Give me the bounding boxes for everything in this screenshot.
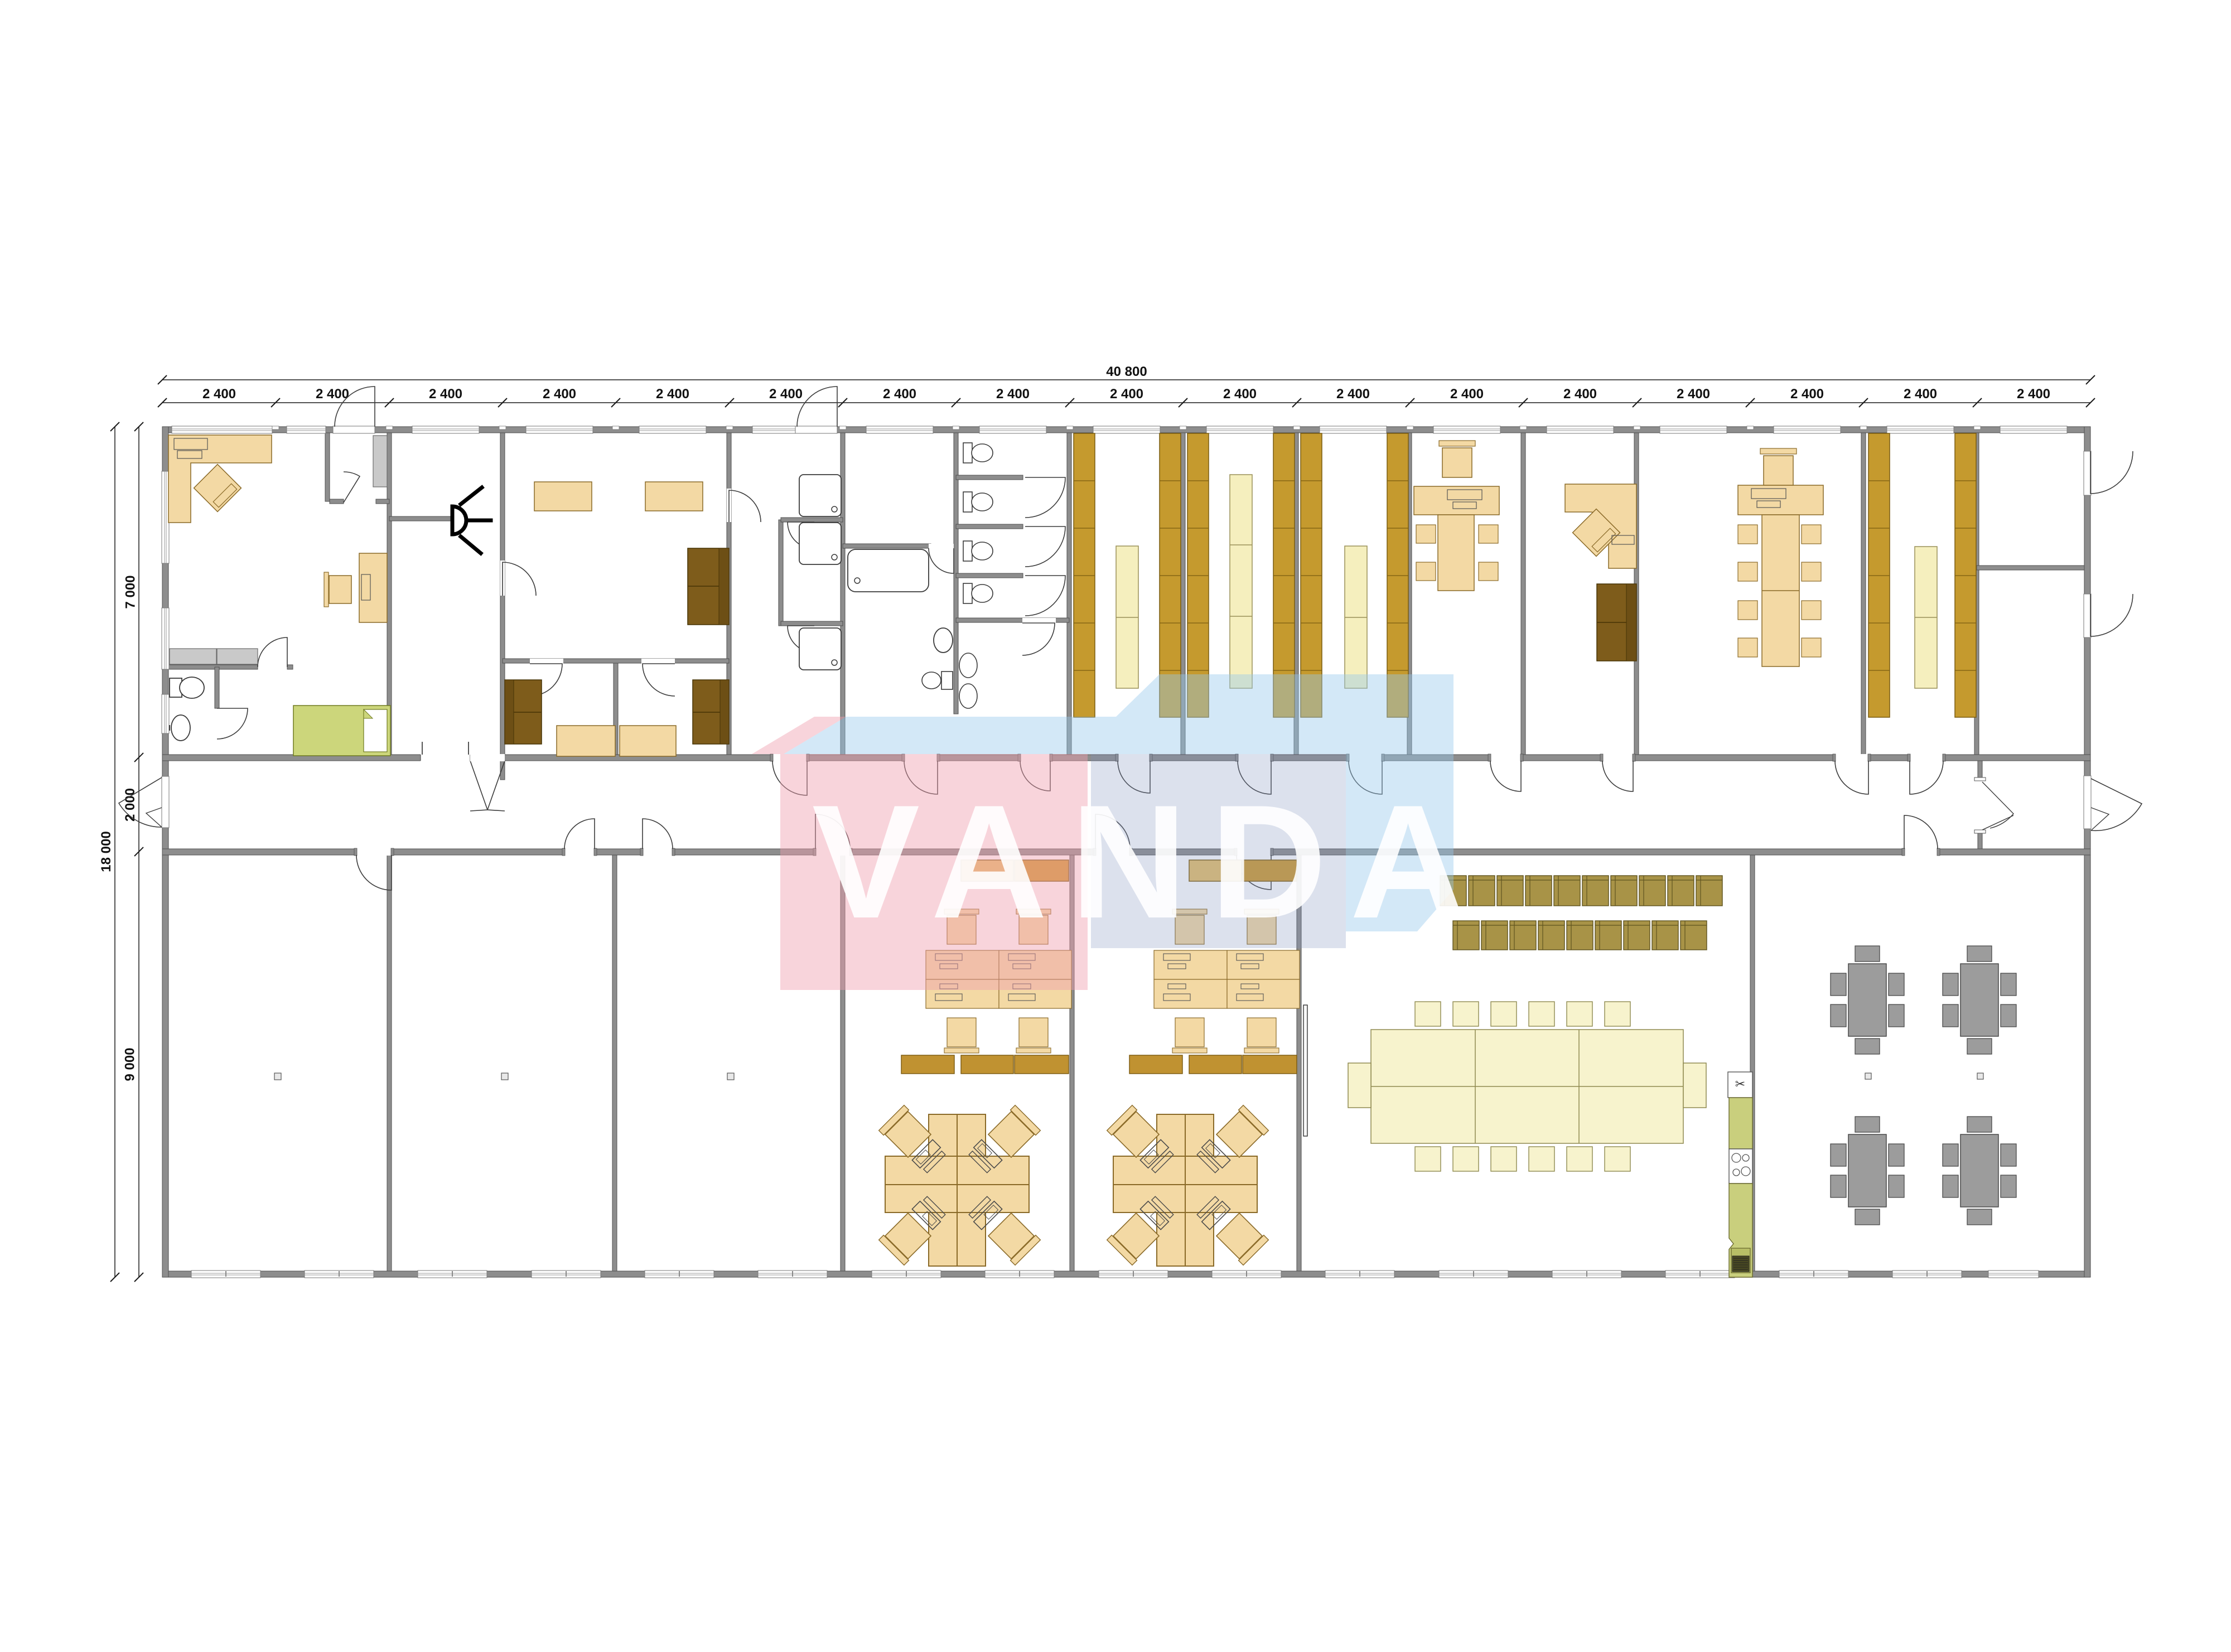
svg-text:40 800: 40 800 bbox=[1106, 364, 1147, 379]
svg-text:2 400: 2 400 bbox=[1450, 387, 1484, 402]
svg-text:✂: ✂ bbox=[1735, 1077, 1745, 1091]
svg-text:2 400: 2 400 bbox=[202, 387, 236, 402]
svg-text:2 400: 2 400 bbox=[1790, 387, 1824, 402]
svg-text:2 400: 2 400 bbox=[1110, 387, 1143, 402]
svg-text:2 400: 2 400 bbox=[883, 387, 916, 402]
svg-text:2 400: 2 400 bbox=[1336, 387, 1370, 402]
svg-text:2 400: 2 400 bbox=[996, 387, 1030, 402]
svg-text:7 000: 7 000 bbox=[123, 575, 138, 608]
svg-text:2 400: 2 400 bbox=[429, 387, 462, 402]
svg-text:2 400: 2 400 bbox=[316, 387, 349, 402]
svg-text:18 000: 18 000 bbox=[99, 831, 114, 872]
svg-text:2 400: 2 400 bbox=[1677, 387, 1710, 402]
svg-text:2 400: 2 400 bbox=[1904, 387, 1937, 402]
svg-text:2 400: 2 400 bbox=[1563, 387, 1597, 402]
svg-text:2 400: 2 400 bbox=[656, 387, 689, 402]
svg-text:9 000: 9 000 bbox=[123, 1047, 138, 1081]
svg-text:VANDA: VANDA bbox=[812, 771, 1490, 952]
svg-text:2 400: 2 400 bbox=[543, 387, 576, 402]
svg-text:2 400: 2 400 bbox=[1223, 387, 1257, 402]
svg-text:2 400: 2 400 bbox=[769, 387, 803, 402]
svg-text:2 400: 2 400 bbox=[2017, 387, 2050, 402]
